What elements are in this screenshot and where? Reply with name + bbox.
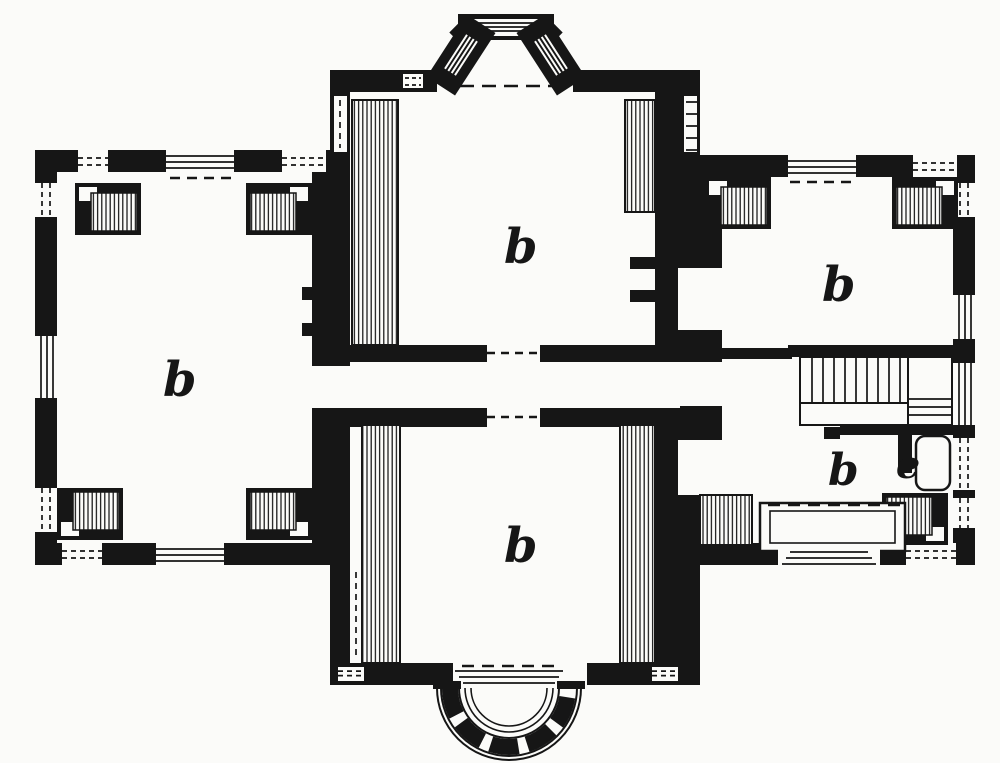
wall-tooth [302,287,330,300]
door-lower-right [678,440,722,495]
corner-chimney [57,488,123,540]
window-opening [62,543,102,565]
door-passage-right [678,362,722,406]
window-opening [403,74,423,88]
corner-chimney [246,488,312,540]
corner-chimney [892,177,958,229]
room-label-upper-hall: b [504,219,538,275]
stair-partition [700,348,792,359]
window-opening [35,183,57,217]
closet-fixture [916,436,950,490]
spine-wall-upper [655,92,680,345]
window-opening [338,667,364,681]
wall-tooth [302,323,330,336]
floor-plan-drawing: b b b b b e [0,0,1000,763]
slit-window-east [684,96,697,152]
window-opening [953,498,975,528]
landing-pier [824,427,840,439]
door-left-room [308,366,352,408]
room-label-lower-right-room: b [828,445,859,496]
stair-head-wall [788,345,960,357]
porch-pier [557,681,585,689]
passage-south-wall-right [540,408,680,427]
paper-background [0,0,1000,763]
chimney-mass [362,425,400,663]
room-label-lower-hall: b [504,518,538,574]
window-opening [78,150,108,172]
chimney-mass [352,100,398,345]
porch-pier [433,681,461,689]
chimney-mass [625,100,655,212]
corner-chimney [75,183,141,235]
window-opening [906,543,956,565]
window-opening [913,155,957,177]
window-opening [282,150,326,172]
room-label-left-room: b [163,352,197,408]
floor-plan-figure: b b b b b e [0,0,1000,763]
passage-north-wall-left [340,345,487,362]
chimney-mass [700,495,752,545]
room-label-upper-right-room: b [822,257,856,313]
wall-tooth [630,290,655,302]
stair-landing [800,403,908,425]
spine-wall-lower [655,425,680,663]
window-opening [35,488,57,532]
window-opening [953,438,975,490]
room-label-stair-closet: e [896,442,920,487]
wall-tooth [630,257,655,269]
chimney-mass [620,425,655,663]
window-opening [652,667,678,681]
corner-chimney [705,177,771,229]
passage-north-wall-right [540,345,680,362]
door-upper-right [678,268,722,330]
corner-chimney [246,183,312,235]
